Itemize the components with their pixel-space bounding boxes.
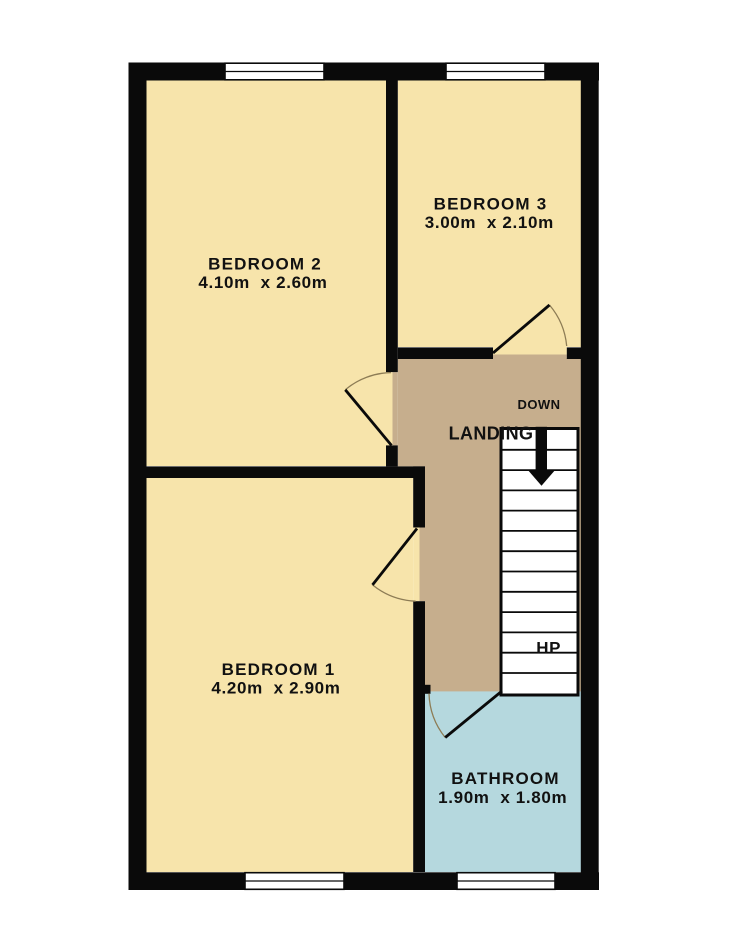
svg-text:BEDROOM 2: BEDROOM 2 — [208, 255, 322, 274]
svg-text:DOWN: DOWN — [518, 397, 561, 412]
svg-text:BEDROOM 1: BEDROOM 1 — [222, 660, 336, 679]
svg-text:4.20m x 2.90m: 4.20m x 2.90m — [211, 679, 340, 698]
svg-text:BEDROOM 3: BEDROOM 3 — [434, 195, 548, 214]
svg-text:LANDING: LANDING — [449, 423, 534, 443]
svg-text:3.00m x 2.10m: 3.00m x 2.10m — [425, 213, 554, 232]
svg-text:BATHROOM: BATHROOM — [451, 769, 559, 788]
svg-text:HP: HP — [536, 638, 561, 657]
svg-text:4.10m x 2.60m: 4.10m x 2.60m — [198, 273, 327, 292]
svg-text:1.90m x 1.80m: 1.90m x 1.80m — [438, 788, 567, 807]
